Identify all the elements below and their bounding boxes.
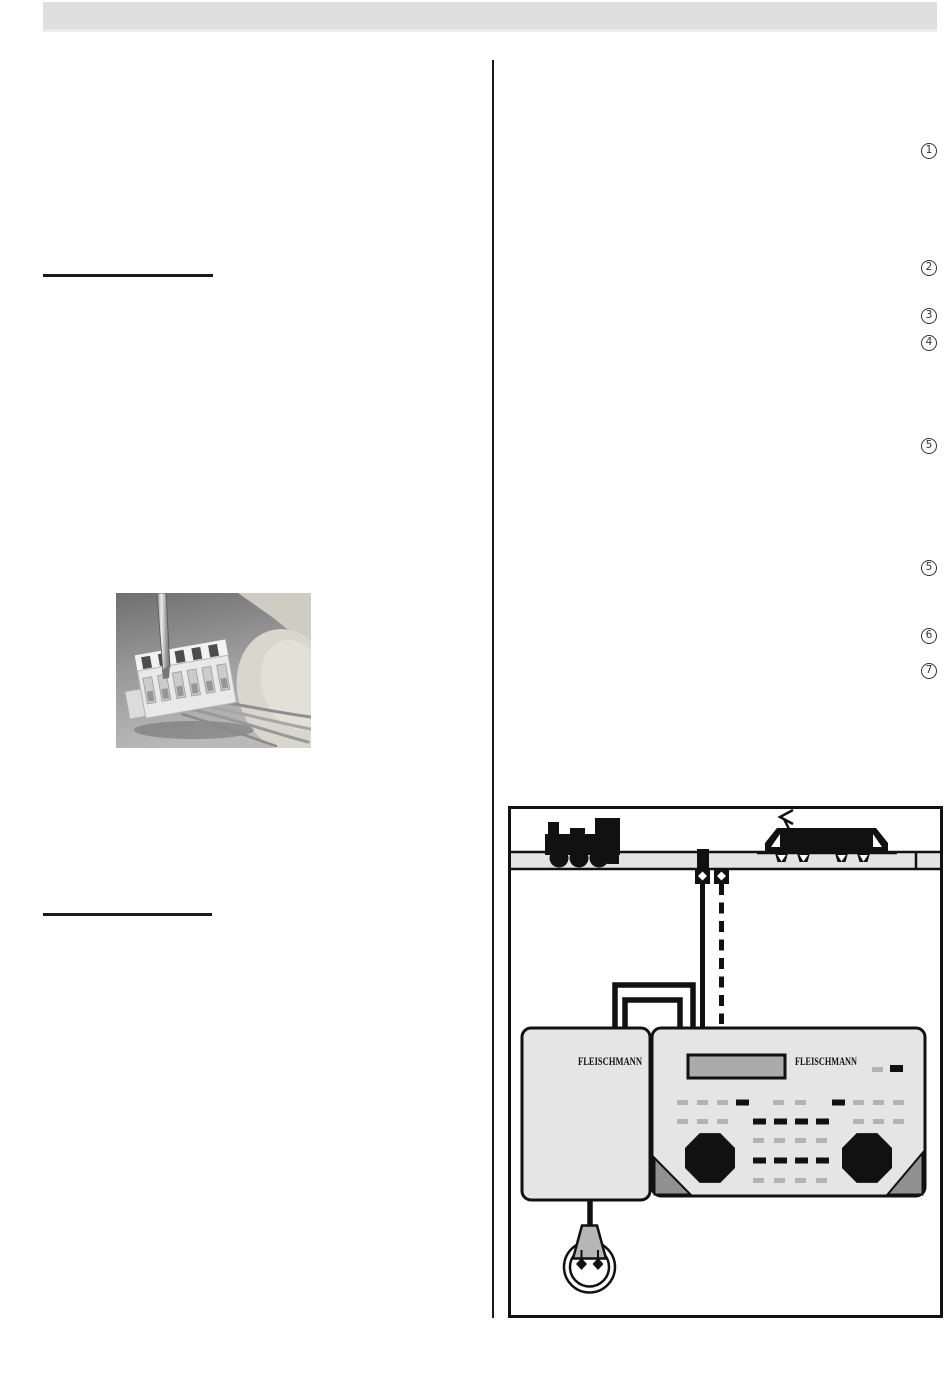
callout-4: 4	[921, 335, 937, 351]
transformer-device: FLEISCHMANN	[522, 1028, 650, 1200]
terminal-wiring-photo	[116, 593, 311, 748]
heading-rule-top	[43, 274, 213, 277]
callout-6: 6	[921, 628, 937, 644]
callout-1: 1	[921, 143, 937, 159]
column-divider-line	[492, 60, 494, 1318]
page-header-bar	[43, 2, 937, 32]
controller-device: FLEISCHMANN	[652, 1028, 925, 1196]
callout-5a: 5	[921, 438, 937, 454]
controller-label: FLEISCHMANN	[795, 1056, 857, 1068]
wiring-diagram: FLEISCHMANN FLEISCHMANN	[508, 806, 943, 1318]
manual-page: 1 2 3 4 5 5 6 7	[0, 0, 950, 1382]
callout-7: 7	[921, 663, 937, 679]
rail-separator	[697, 849, 709, 869]
heading-rule-bottom	[43, 913, 212, 916]
display-screen	[688, 1055, 785, 1078]
control-knob-left	[685, 1133, 735, 1183]
callout-2: 2	[921, 260, 937, 276]
callout-3: 3	[921, 308, 937, 324]
control-knob-right	[842, 1133, 892, 1183]
callout-5b: 5	[921, 560, 937, 576]
block-shadow	[134, 721, 254, 739]
transformer-label: FLEISCHMANN	[578, 1056, 643, 1068]
